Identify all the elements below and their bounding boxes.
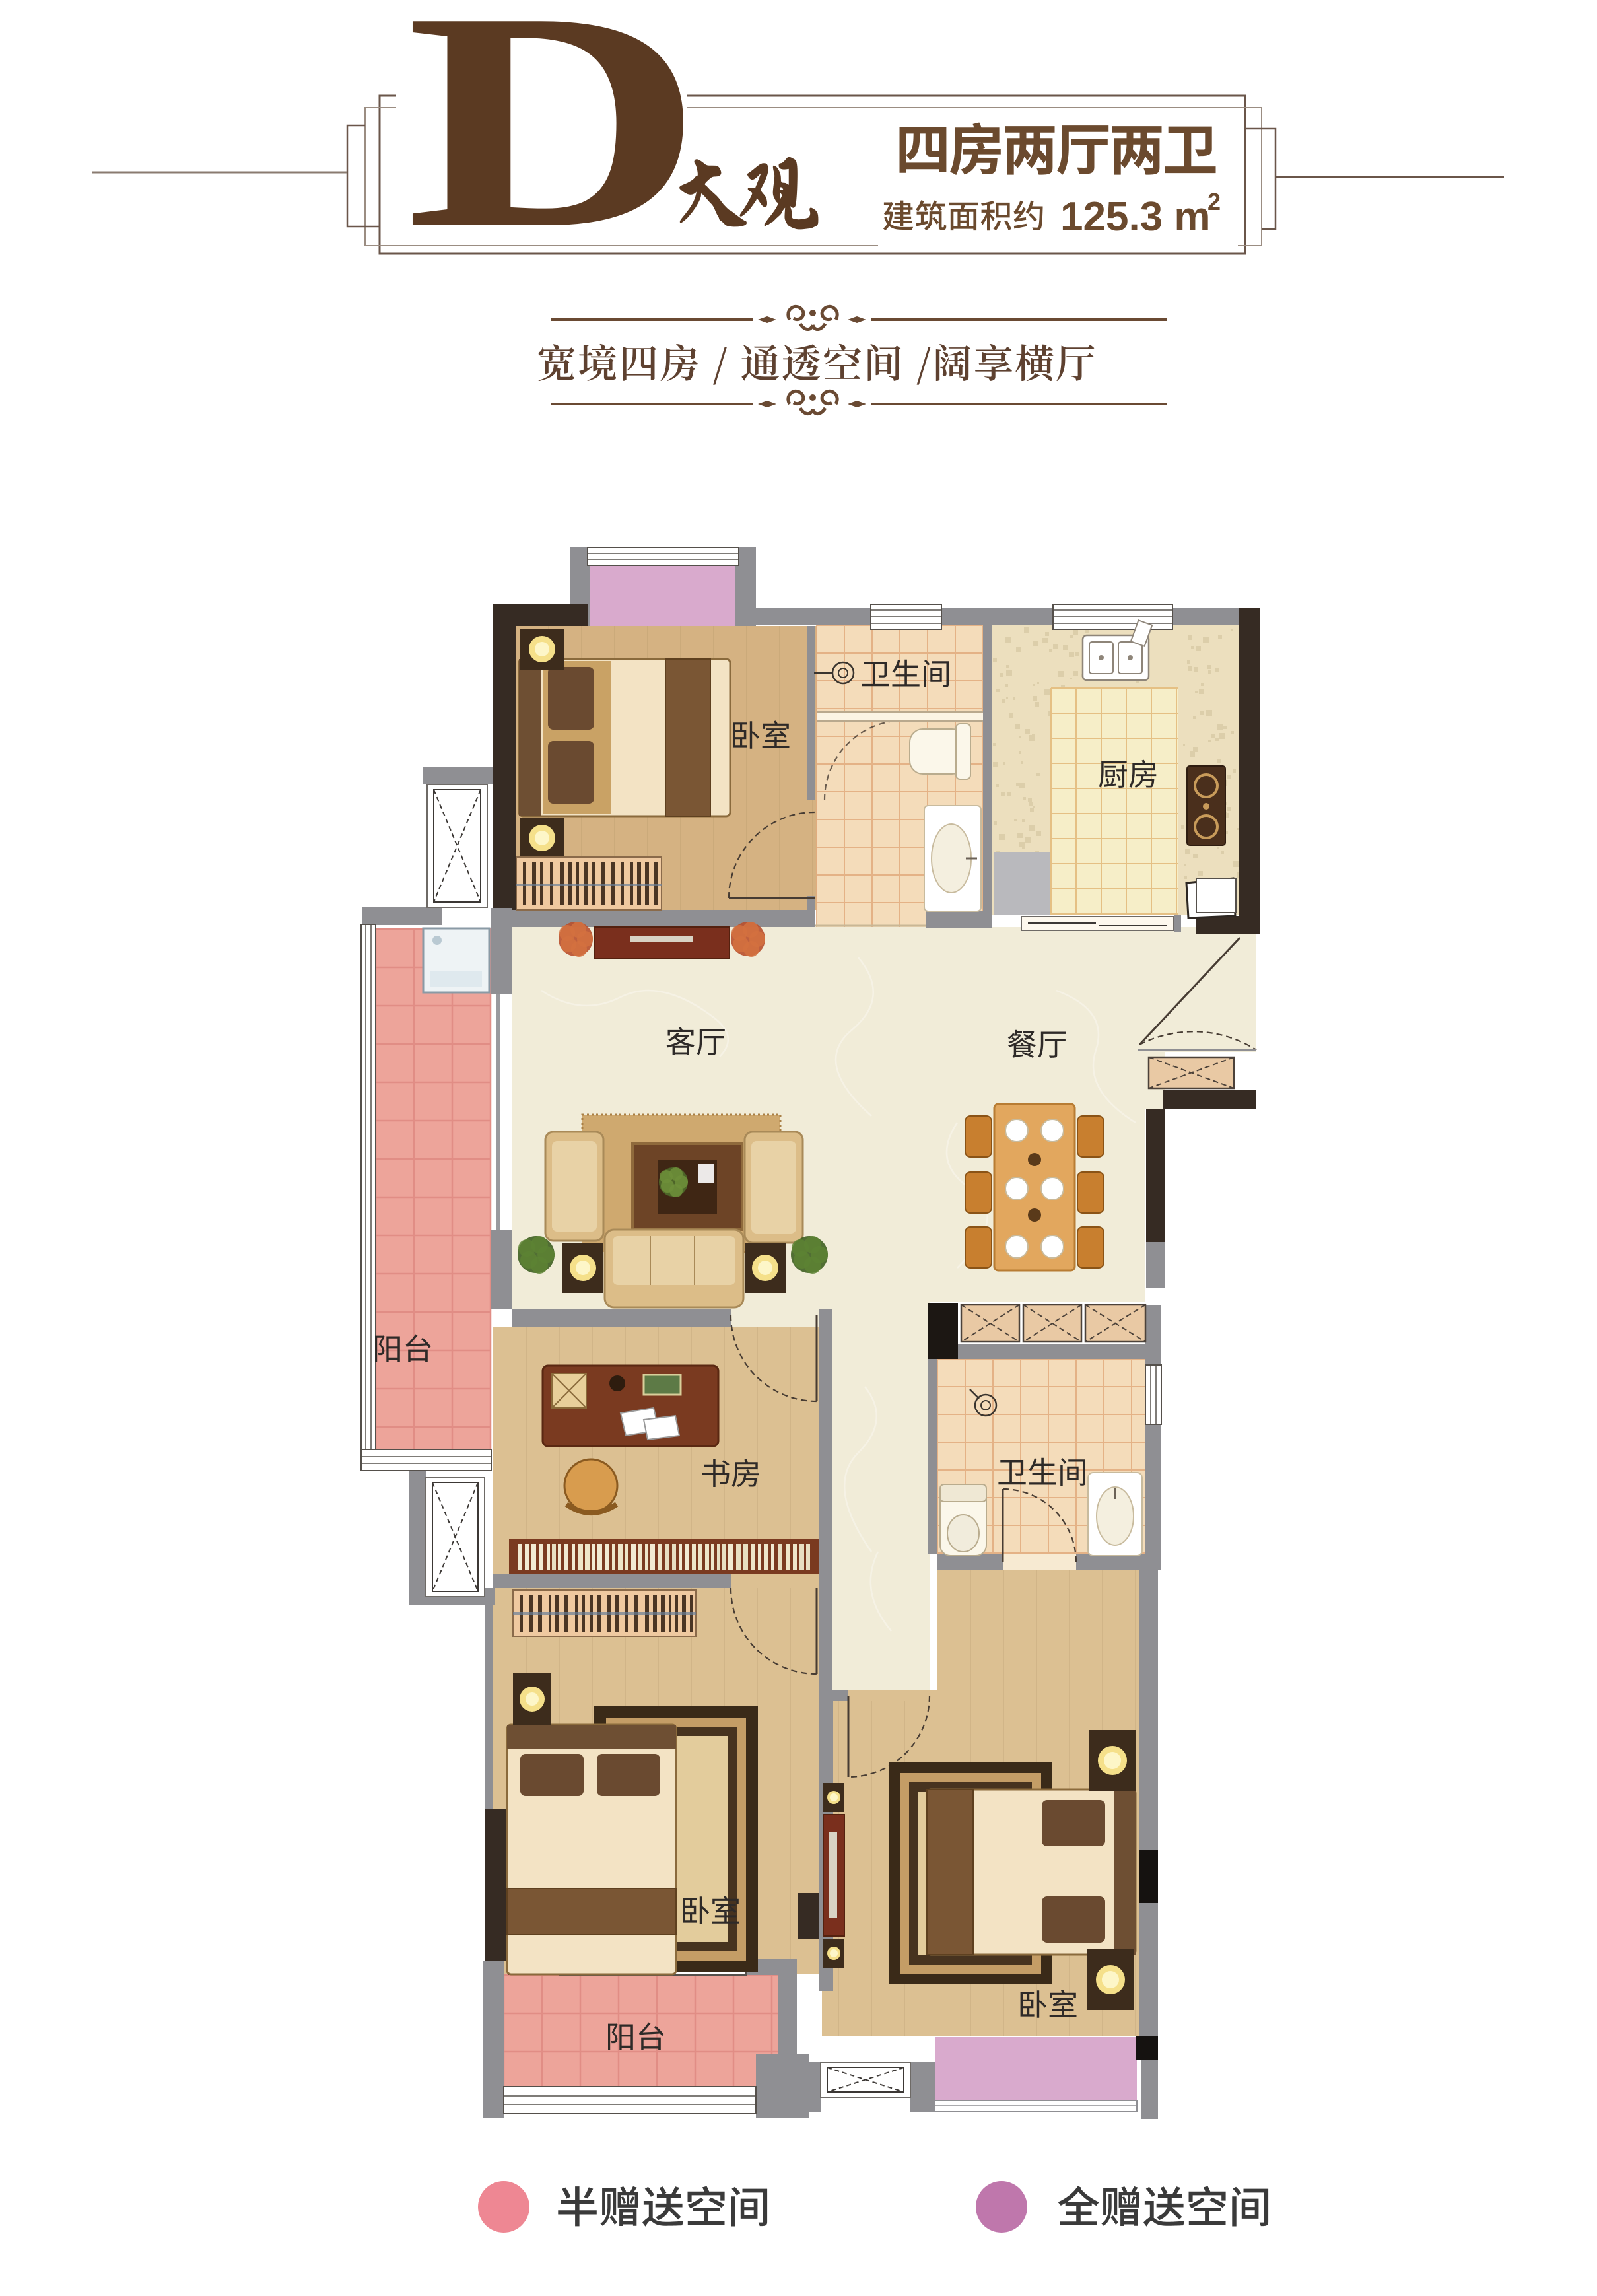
svg-text:D: D xyxy=(405,0,703,292)
svg-text:2: 2 xyxy=(1207,188,1221,215)
svg-text:125.3 m: 125.3 m xyxy=(1060,194,1211,240)
